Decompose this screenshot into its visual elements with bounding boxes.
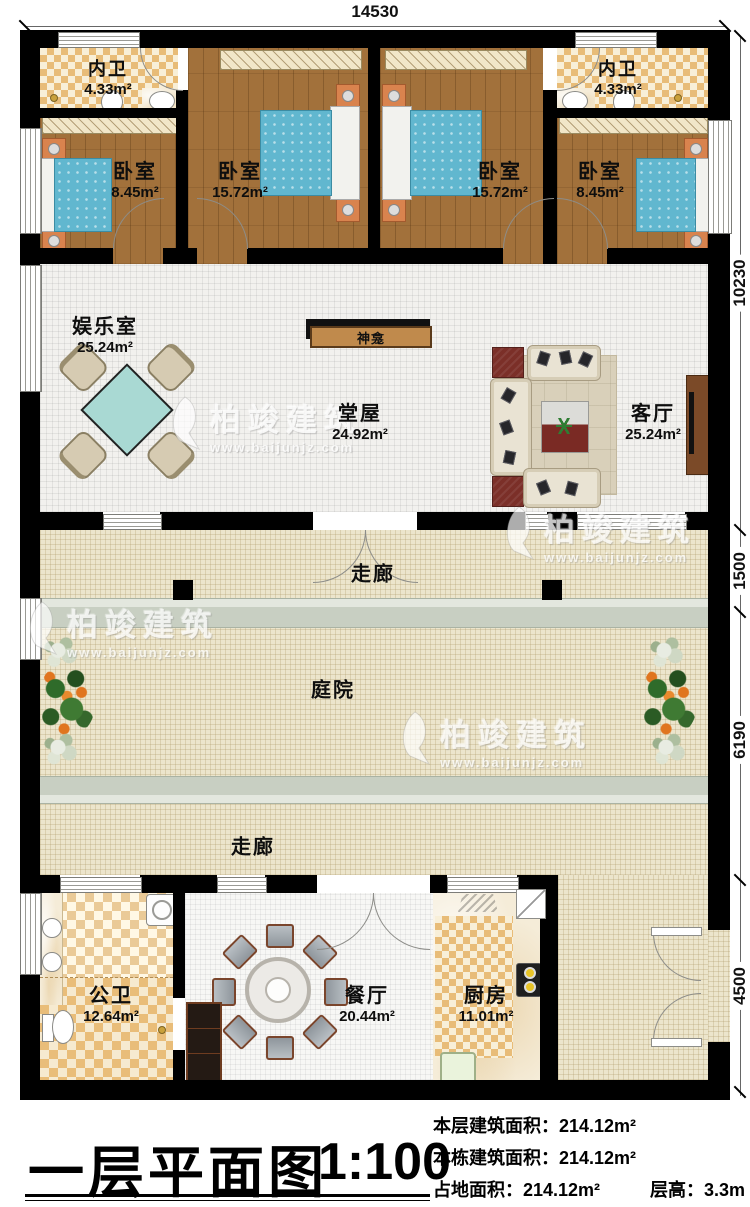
room-label-neiwei-left: 内卫 4.33m² bbox=[84, 59, 132, 99]
shrub bbox=[42, 732, 82, 770]
wall bbox=[163, 248, 197, 264]
title-underline-2 bbox=[25, 1200, 430, 1201]
orange-tree bbox=[38, 662, 96, 738]
wall bbox=[140, 875, 217, 893]
title-underline bbox=[25, 1194, 430, 1197]
wall bbox=[557, 108, 708, 118]
sink bbox=[42, 918, 62, 938]
label-corridor-lower: 走廊 bbox=[231, 831, 275, 860]
range-hood bbox=[458, 894, 498, 912]
wall bbox=[40, 108, 176, 118]
bed-pillow bbox=[382, 106, 412, 200]
bed bbox=[260, 110, 332, 196]
sofa-left bbox=[490, 378, 532, 476]
room-label-canting: 餐厅 20.44m² bbox=[339, 984, 395, 1026]
wall bbox=[417, 512, 525, 530]
label-courtyard: 庭院 bbox=[311, 674, 355, 703]
window bbox=[575, 32, 657, 48]
room-label-bedroom-1: 卧室 8.45m² bbox=[111, 160, 159, 202]
window bbox=[20, 598, 42, 660]
dimension-right-1500: 1500 bbox=[730, 547, 750, 595]
sofa-top bbox=[527, 345, 601, 381]
floor-mat bbox=[492, 476, 524, 507]
wall bbox=[380, 248, 503, 264]
wall bbox=[176, 90, 188, 264]
bed-pillow bbox=[330, 106, 360, 200]
bed bbox=[636, 158, 696, 232]
wall bbox=[540, 917, 558, 1080]
entry-opening bbox=[708, 930, 730, 1042]
shrub bbox=[650, 732, 690, 770]
window bbox=[58, 32, 140, 48]
nightstand bbox=[336, 198, 360, 222]
wall bbox=[265, 875, 317, 893]
wall bbox=[160, 512, 313, 530]
dimension-top: 14530 bbox=[346, 2, 403, 22]
sideboard-cabinet bbox=[186, 1002, 222, 1084]
door-knob bbox=[158, 1026, 166, 1034]
dining-chair bbox=[266, 924, 294, 948]
wall bbox=[173, 893, 185, 998]
wall bbox=[40, 875, 60, 893]
wardrobe bbox=[220, 50, 362, 70]
window bbox=[20, 265, 42, 392]
dimension-line-top bbox=[25, 26, 725, 27]
shower-divider bbox=[40, 977, 173, 978]
window bbox=[525, 514, 549, 530]
window bbox=[708, 120, 732, 234]
faucet-knob bbox=[50, 94, 58, 102]
wall bbox=[368, 30, 380, 264]
room-label-keting: 客厅 25.24m² bbox=[625, 402, 681, 444]
tv-cabinet bbox=[686, 375, 710, 475]
floor-plan: 神龛 bbox=[0, 0, 750, 1207]
window bbox=[20, 893, 42, 975]
nightstand bbox=[336, 84, 360, 108]
wall bbox=[40, 248, 113, 264]
wardrobe bbox=[385, 50, 527, 70]
info-land-area: 占地面积：214.12m² bbox=[433, 1176, 600, 1202]
room-label-bedroom-2: 卧室 15.72m² bbox=[212, 160, 268, 202]
nightstand bbox=[684, 138, 708, 160]
wall bbox=[430, 875, 447, 893]
room-label-tangwu: 堂屋 24.92m² bbox=[332, 402, 388, 444]
shrine-label: 神龛 bbox=[357, 328, 385, 347]
dimension-right-4500: 4500 bbox=[730, 962, 750, 1010]
window bbox=[60, 877, 142, 893]
wall bbox=[173, 1050, 185, 1080]
floor-mat bbox=[492, 347, 524, 378]
wall bbox=[607, 248, 708, 264]
stove bbox=[516, 963, 542, 997]
window bbox=[20, 128, 42, 234]
info-floor-height: 层高：3.3m bbox=[650, 1176, 745, 1202]
wall bbox=[547, 512, 577, 530]
wall bbox=[553, 248, 557, 264]
table-plant bbox=[556, 418, 572, 434]
wall bbox=[247, 248, 380, 264]
bed bbox=[54, 158, 112, 232]
faucet-knob bbox=[674, 94, 682, 102]
nightstand bbox=[382, 198, 406, 222]
window bbox=[577, 514, 687, 530]
nightstand bbox=[42, 138, 66, 160]
orange-tree bbox=[640, 662, 698, 738]
room-label-yuleshi: 娱乐室 25.24m² bbox=[72, 315, 138, 357]
pillar bbox=[173, 580, 193, 600]
room-label-gongwei: 公卫 12.64m² bbox=[83, 984, 139, 1026]
plan-scale: 1:100 bbox=[318, 1132, 451, 1192]
wall bbox=[40, 512, 103, 530]
dimension-right-10230: 10230 bbox=[730, 254, 750, 311]
wall bbox=[685, 512, 708, 530]
wall bbox=[20, 1080, 730, 1100]
info-building-area: 本栋建筑面积：214.12m² bbox=[433, 1144, 636, 1170]
shrine: 神龛 bbox=[310, 326, 432, 348]
sink bbox=[42, 952, 62, 972]
entry-door-leaf bbox=[651, 1038, 702, 1047]
walkway-band-upper bbox=[40, 598, 708, 628]
window bbox=[447, 877, 519, 893]
window bbox=[103, 514, 162, 530]
room-label-bedroom-4: 卧室 8.45m² bbox=[576, 160, 624, 202]
room-label-chufang: 厨房 11.01m² bbox=[458, 984, 513, 1026]
label-corridor-upper: 走廊 bbox=[351, 558, 395, 587]
info-floor-area: 本层建筑面积：214.12m² bbox=[433, 1112, 636, 1138]
walkway-band-lower bbox=[40, 776, 708, 804]
toilet bbox=[52, 1010, 74, 1044]
window bbox=[217, 877, 267, 893]
room-label-neiwei-right: 内卫 4.33m² bbox=[594, 59, 642, 99]
dining-table-center bbox=[265, 977, 291, 1003]
dimension-right-6190: 6190 bbox=[730, 716, 750, 764]
dining-chair bbox=[266, 1036, 294, 1060]
entry-door-leaf bbox=[651, 927, 702, 936]
pillar bbox=[542, 580, 562, 600]
kitchen-door-leaf bbox=[516, 889, 546, 919]
sofa-bottom bbox=[523, 468, 601, 508]
room-label-bedroom-3: 卧室 15.72m² bbox=[472, 160, 528, 202]
bath-counter bbox=[40, 893, 63, 1005]
nightstand bbox=[382, 84, 406, 108]
